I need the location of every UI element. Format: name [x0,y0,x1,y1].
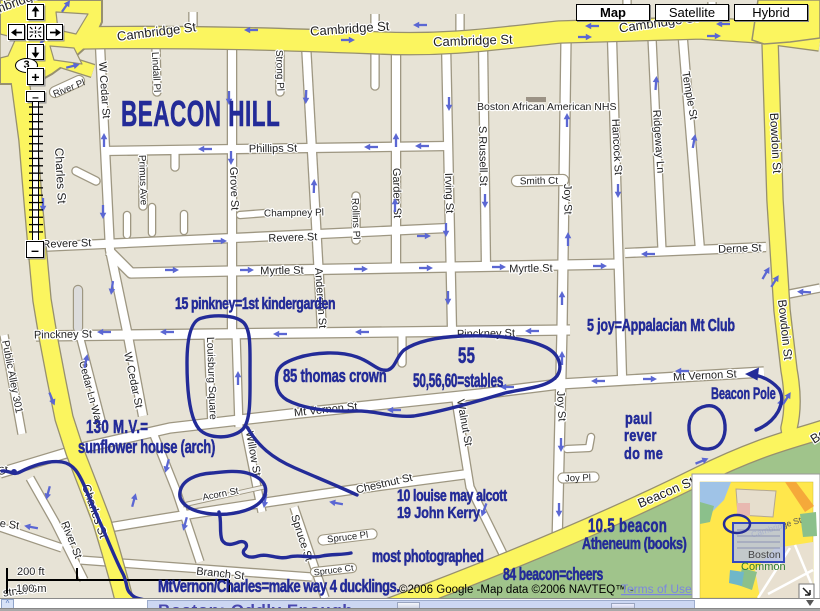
svg-text:Strong Pl: Strong Pl [273,50,285,91]
svg-text:Rollins Pl: Rollins Pl [349,198,361,240]
svg-text:Grove St: Grove St [227,167,241,211]
svg-text:Boston: Boston [748,549,781,561]
svg-text:Joy St: Joy St [561,184,574,215]
svg-text:Terms of Use: Terms of Use [621,582,692,596]
svg-text:e St: e St [0,518,20,533]
svg-text:130 M.V.=: 130 M.V.= [86,418,148,437]
svg-text:200 ft: 200 ft [17,566,45,578]
svg-text:S Russell St: S Russell St [476,126,489,186]
svg-text:Phillips St: Phillips St [249,143,297,156]
svg-text:50,56,60=stables: 50,56,60=stables [413,370,503,392]
svg-text:15 pinkney=1st kindergarden: 15 pinkney=1st kindergarden [175,295,336,313]
svg-text:Revere St: Revere St [268,231,317,245]
svg-text:Joy Pl: Joy Pl [565,473,591,485]
svg-text:Myrtle St: Myrtle St [260,265,304,278]
svg-text:Boston African American NHS: Boston African American NHS [477,101,616,113]
svg-text:5 joy=Appalacian Mt Club: 5 joy=Appalacian Mt Club [587,316,735,336]
svg-text:Irving St: Irving St [442,173,455,214]
svg-text:BEACON HILL: BEACON HILL [121,95,280,135]
svg-text:©2006 Google -Map data ©2006 N: ©2006 Google -Map data ©2006 NAVTEQ™ - [399,584,634,596]
svg-text:Primus Ave: Primus Ave [136,155,149,206]
svg-text:19 John Kerry: 19 John Kerry [397,505,480,522]
svg-text:Beacon Pole: Beacon Pole [711,385,776,404]
svg-text:Common: Common [741,561,786,573]
svg-text:rever: rever [624,426,657,445]
svg-text:Garden St: Garden St [390,168,403,218]
svg-text:Revere St: Revere St [42,237,91,251]
svg-text:100 m: 100 m [16,583,47,595]
svg-text:10 louise may alcott: 10 louise may alcott [397,487,507,505]
svg-text:Smith Ct: Smith Ct [520,176,559,188]
svg-text:most photographed: most photographed [372,547,484,567]
svg-text:84 beacon=cheers: 84 beacon=cheers [503,565,603,585]
svg-text:do me: do me [624,444,663,463]
svg-text:Cambridge St: Cambridge St [433,32,513,50]
svg-text:55: 55 [458,343,475,367]
svg-text:sunflower house (arch): sunflower house (arch) [78,438,215,458]
svg-text:Atheneum (books): Atheneum (books) [582,535,687,553]
svg-text:Charles St: Charles St [52,147,69,204]
svg-text:Joy St: Joy St [554,391,568,422]
svg-text:Lindall Pl: Lindall Pl [149,52,162,93]
svg-text:Pinckney St: Pinckney St [34,328,92,341]
svg-text:Derne St: Derne St [718,242,762,256]
svg-text:10.5 beacon: 10.5 beacon [588,514,667,536]
svg-text:85 thomas crown: 85 thomas crown [283,367,386,387]
svg-text:Myrtle St: Myrtle St [509,263,553,276]
svg-text:MtVernon/Charles=make way 4 du: MtVernon/Charles=make way 4 ducklings. [158,577,400,596]
svg-text:Champney Pl: Champney Pl [264,207,324,219]
